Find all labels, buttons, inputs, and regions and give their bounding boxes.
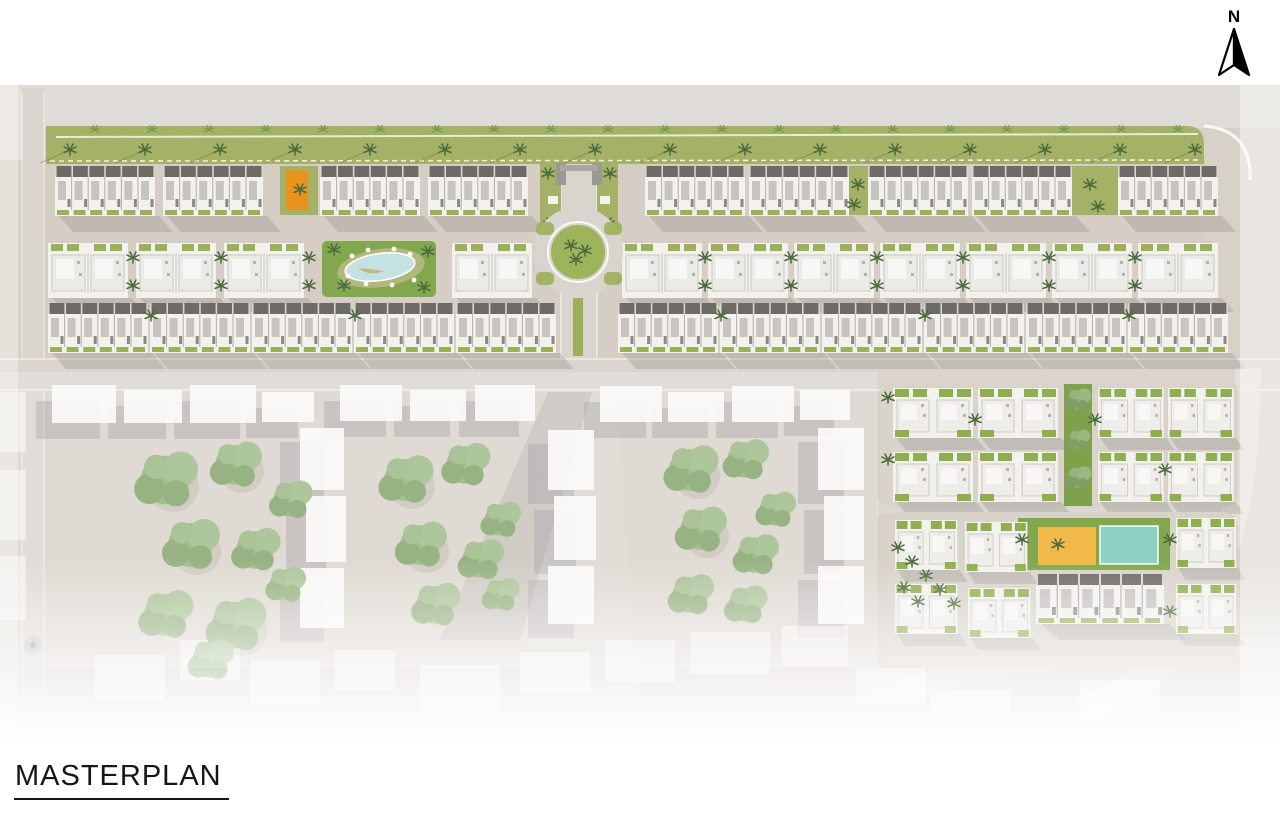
page: N MASTERPLAN [0, 0, 1280, 833]
masterplan-title: MASTERPLAN [14, 760, 229, 800]
masterplan-rendering [0, 0, 1280, 833]
townhouse-row-3 [48, 303, 1246, 369]
compass-label: N [1202, 8, 1266, 25]
highlighted-unit [286, 170, 308, 210]
community-pool [322, 241, 436, 297]
north-arrow-icon [1211, 27, 1257, 79]
north-compass: N [1202, 8, 1266, 84]
palm-boulevard [40, 126, 1204, 165]
sun-deck [1038, 527, 1096, 565]
cluster-right-upper [880, 378, 1244, 514]
clubhouse-pool [1100, 526, 1158, 564]
